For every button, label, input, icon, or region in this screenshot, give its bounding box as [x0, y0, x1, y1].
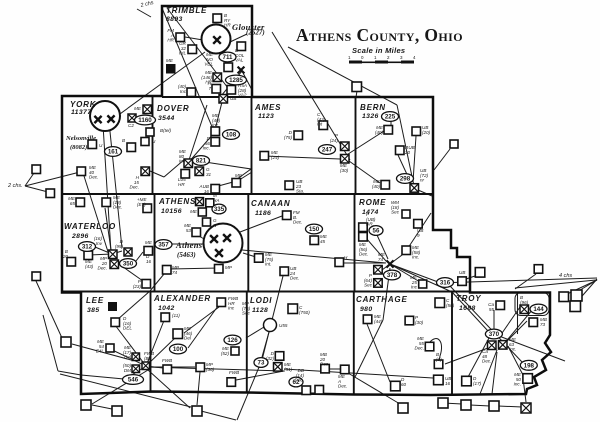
svg-text:VA2: VA2 — [238, 93, 247, 98]
svg-text:1123: 1123 — [258, 113, 274, 120]
svg-text:VAL: VAL — [235, 58, 244, 63]
svg-text:B: B — [122, 138, 125, 143]
svg-text:ME: ME — [190, 209, 198, 214]
svg-text:(40): (40) — [372, 184, 381, 189]
svg-text:Dec.: Dec. — [98, 266, 107, 271]
svg-text:385: 385 — [87, 307, 100, 314]
svg-text:4 chs: 4 chs — [559, 273, 572, 279]
svg-text:11377: 11377 — [71, 109, 92, 116]
svg-text:(36): (36) — [206, 367, 215, 372]
svg-text:(B): (B) — [144, 356, 151, 361]
svg-text:1688: 1688 — [459, 305, 476, 312]
svg-text:73: 73 — [540, 322, 546, 327]
svg-text:Sec: Sec — [364, 283, 373, 288]
svg-text:Dec.: Dec. — [293, 220, 302, 225]
svg-text:(20): (20) — [422, 130, 431, 135]
svg-text:Inc.: Inc. — [203, 146, 210, 151]
svg-text:ME: ME — [145, 240, 153, 245]
svg-text:HR: HR — [167, 38, 174, 43]
svg-text:ME: ME — [235, 173, 243, 178]
svg-text:(51): (51) — [284, 367, 293, 372]
svg-text:2896: 2896 — [71, 233, 89, 240]
svg-text:Inc: Inc — [411, 285, 418, 290]
svg-text:161: 161 — [108, 149, 119, 156]
svg-text:(5463): (5463) — [177, 251, 196, 259]
svg-text:MP: MP — [225, 265, 233, 270]
svg-text:Dec.: Dec. — [295, 378, 304, 383]
svg-text:7: 7 — [208, 86, 211, 91]
svg-text:100: 100 — [173, 346, 184, 353]
svg-text:Inc: Inc — [179, 159, 186, 164]
svg-text:TROY: TROY — [456, 294, 481, 303]
svg-text:Int: Int — [317, 122, 323, 127]
svg-text:(E7): (E7) — [137, 202, 146, 207]
svg-text:Athens: Athens — [175, 240, 203, 250]
svg-text:144: 144 — [533, 306, 544, 313]
svg-text:980: 980 — [360, 306, 373, 313]
svg-text:1474: 1474 — [362, 209, 379, 216]
svg-text:198: 198 — [524, 362, 535, 369]
svg-text:HR: HR — [224, 23, 231, 28]
svg-text:(23): (23) — [133, 284, 142, 289]
svg-text:Inc.: Inc. — [509, 347, 516, 352]
svg-text:74: 74 — [378, 257, 384, 262]
svg-text:C2: C2 — [128, 123, 134, 128]
svg-text:(44): (44) — [374, 319, 383, 324]
svg-text:(17): (17) — [473, 381, 482, 386]
svg-text:Dec.: Dec. — [482, 359, 491, 364]
svg-text:(8082): (8082) — [70, 144, 87, 151]
svg-text:HA: HA — [213, 198, 219, 203]
svg-text:Dec.: Dec. — [290, 276, 299, 281]
svg-text:FWB: FWB — [229, 370, 239, 375]
svg-text:Dec.: Dec. — [415, 346, 424, 351]
svg-text:1128: 1128 — [252, 307, 268, 314]
svg-text:335: 335 — [214, 206, 225, 213]
svg-text:(96): (96) — [520, 300, 529, 305]
svg-text:FWB: FWB — [162, 358, 172, 363]
svg-text:1326: 1326 — [362, 113, 379, 120]
svg-text:(43): (43) — [85, 264, 94, 269]
svg-text:1042: 1042 — [158, 305, 175, 312]
svg-text:Nelsonville: Nelsonville — [65, 135, 96, 142]
svg-text:Inc.: Inc. — [212, 123, 219, 128]
svg-text:(750): (750) — [299, 310, 310, 315]
svg-text:Sec: Sec — [242, 311, 251, 316]
svg-text:ME: ME — [134, 106, 142, 111]
svg-text:HR: HR — [178, 182, 185, 187]
svg-text:126: 126 — [227, 337, 238, 344]
svg-text:316: 316 — [440, 280, 451, 287]
svg-text:16: 16 — [445, 381, 451, 386]
svg-text:(50): (50) — [446, 303, 455, 308]
svg-text:(30): (30) — [340, 168, 349, 173]
svg-text:247: 247 — [322, 147, 333, 154]
svg-text:55: 55 — [489, 307, 495, 312]
svg-text:DEL: DEL — [123, 326, 132, 331]
svg-text:DM: DM — [124, 368, 131, 373]
svg-text:(2527): (2527) — [246, 29, 265, 37]
svg-text:60: 60 — [401, 382, 407, 387]
svg-text:74: 74 — [172, 270, 178, 275]
svg-text:1160: 1160 — [138, 117, 152, 124]
svg-text:378: 378 — [387, 272, 398, 279]
svg-text:IHL: IHL — [179, 51, 187, 56]
svg-text:ME: ME — [166, 58, 174, 63]
svg-text:ROME: ROME — [359, 198, 386, 207]
svg-text:53: 53 — [186, 228, 192, 233]
svg-text:3544: 3544 — [158, 115, 175, 122]
svg-text:56: 56 — [373, 228, 380, 235]
svg-text:350: 350 — [123, 261, 134, 268]
svg-text:UB: UB — [230, 96, 236, 101]
svg-text:UB: UB — [459, 270, 465, 275]
svg-text:(95): (95) — [115, 244, 124, 249]
svg-text:357: 357 — [158, 242, 169, 249]
svg-text:73: 73 — [258, 360, 265, 367]
svg-text:E4L: E4L — [96, 349, 105, 354]
svg-text:546: 546 — [128, 377, 139, 384]
svg-text:YORK: YORK — [70, 100, 97, 109]
svg-text:Inv: Inv — [96, 241, 103, 246]
svg-text:U55: U55 — [279, 323, 288, 328]
svg-text:Inc: Inc — [228, 306, 235, 311]
svg-text:(30): (30) — [415, 320, 424, 325]
svg-text:711: 711 — [223, 54, 234, 61]
svg-text:Int.: Int. — [265, 262, 271, 267]
svg-text:WATERLOO: WATERLOO — [64, 222, 116, 231]
svg-text:150: 150 — [309, 226, 320, 233]
svg-text:16: 16 — [204, 189, 210, 194]
svg-text:LEE: LEE — [86, 296, 104, 305]
svg-text:31: 31 — [206, 172, 212, 177]
svg-text:Del: Del — [184, 336, 192, 341]
svg-text:(11): (11) — [172, 313, 180, 318]
svg-text:BERN: BERN — [360, 103, 386, 112]
svg-text:Inc: Inc — [180, 89, 187, 94]
svg-text:(75): (75) — [284, 135, 293, 140]
svg-text:2 chs.: 2 chs. — [7, 183, 23, 189]
svg-text:370: 370 — [489, 331, 500, 338]
svg-text:Dec.: Dec. — [320, 362, 329, 367]
svg-text:CANAAN: CANAAN — [251, 199, 290, 208]
svg-text:DOVER: DOVER — [157, 104, 189, 113]
svg-text:65: 65 — [70, 201, 76, 206]
svg-text:Sta.: Sta. — [296, 189, 304, 194]
svg-text:8893: 8893 — [166, 16, 183, 23]
svg-text:45: 45 — [320, 239, 326, 244]
svg-text:Dec.: Dec. — [89, 175, 98, 180]
svg-text:VEL: VEL — [204, 62, 213, 67]
svg-text:Inc.: Inc. — [514, 382, 521, 387]
svg-text:nr: nr — [420, 178, 425, 183]
svg-text:Dec.: Dec. — [130, 185, 139, 190]
svg-text:Dec.: Dec. — [113, 205, 122, 210]
svg-text:Dec.: Dec. — [338, 384, 347, 389]
svg-text:CARTHAGE: CARTHAGE — [356, 295, 408, 304]
svg-text:(32): (32) — [266, 356, 275, 361]
svg-text:16: 16 — [146, 259, 152, 264]
svg-text:TRIMBLE: TRIMBLE — [166, 6, 207, 15]
svg-text:821: 821 — [196, 158, 207, 165]
svg-text:LODI: LODI — [250, 296, 272, 305]
svg-text:Scale in Miles: Scale in Miles — [352, 46, 405, 55]
svg-text:10156: 10156 — [161, 208, 182, 215]
svg-text:(1): (1) — [436, 357, 442, 362]
svg-text:1186: 1186 — [255, 210, 271, 217]
svg-text:DR.: DR. — [366, 222, 374, 227]
svg-text:(24): (24) — [330, 138, 339, 143]
svg-text:108: 108 — [226, 132, 237, 139]
svg-text:298: 298 — [400, 176, 411, 183]
svg-text:(24): (24) — [271, 155, 280, 160]
svg-text:20: 20 — [62, 254, 69, 259]
svg-text:20: 20 — [404, 150, 411, 155]
svg-text:9: 9 — [417, 233, 420, 238]
svg-text:ALEXANDER: ALEXANDER — [153, 294, 211, 303]
svg-text:B(tel): B(tel) — [160, 128, 171, 133]
svg-text:Del: Del — [124, 355, 132, 360]
svg-text:AMES: AMES — [254, 103, 281, 112]
svg-text:(52): (52) — [221, 351, 230, 356]
svg-text:Dec.: Dec. — [359, 252, 368, 257]
svg-text:Inc.: Inc. — [412, 255, 419, 260]
svg-text:(40): (40) — [375, 130, 384, 135]
svg-text:312: 312 — [82, 244, 93, 251]
svg-text:225: 225 — [385, 114, 396, 121]
svg-text:Sec: Sec — [391, 210, 400, 215]
svg-text:ATHENS: ATHENS — [158, 197, 196, 206]
svg-text:Athens County, Ohio: Athens County, Ohio — [296, 25, 463, 45]
